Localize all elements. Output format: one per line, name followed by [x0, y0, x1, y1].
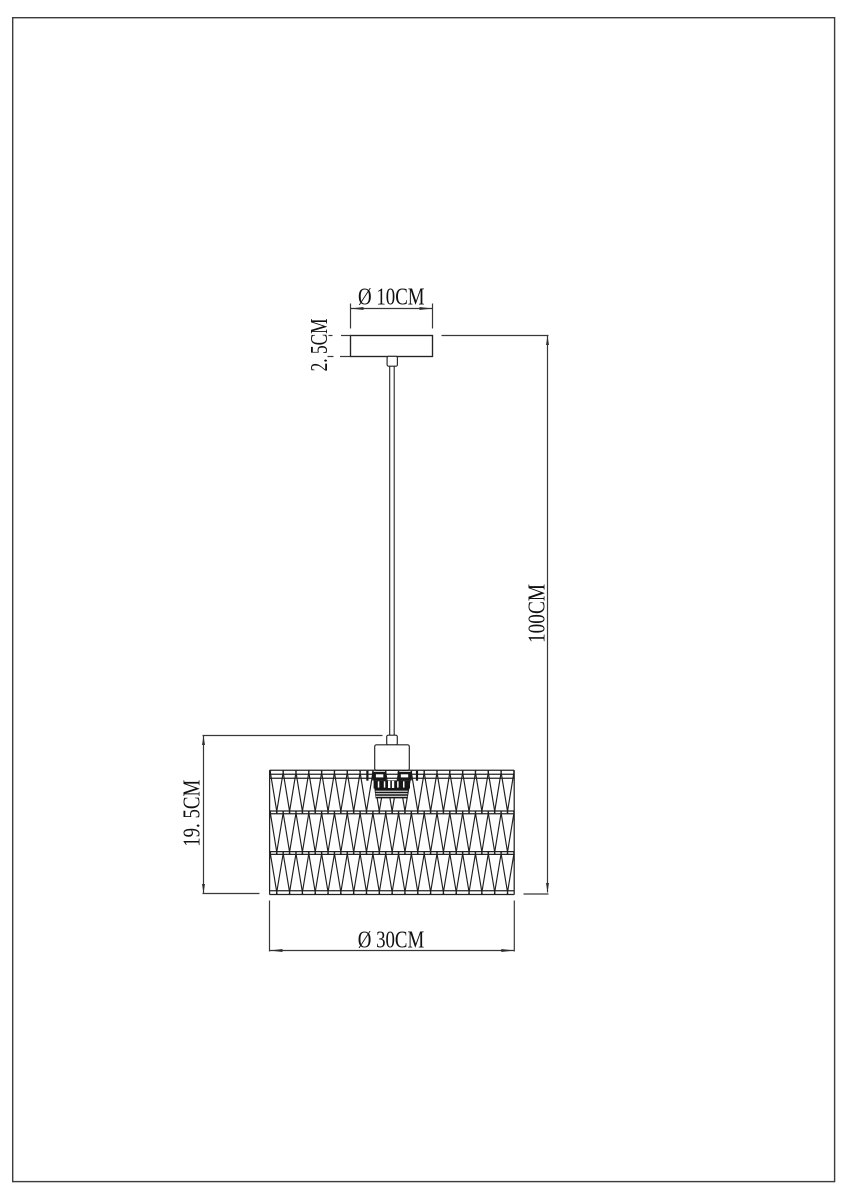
svg-text:100CM: 100CM	[524, 584, 550, 643]
svg-text:Ø 30CM: Ø 30CM	[358, 927, 425, 953]
svg-text:19. 5CM: 19. 5CM	[179, 780, 205, 847]
svg-text:2. 5CM: 2. 5CM	[307, 318, 333, 371]
svg-text:Ø 10CM: Ø 10CM	[358, 285, 425, 311]
